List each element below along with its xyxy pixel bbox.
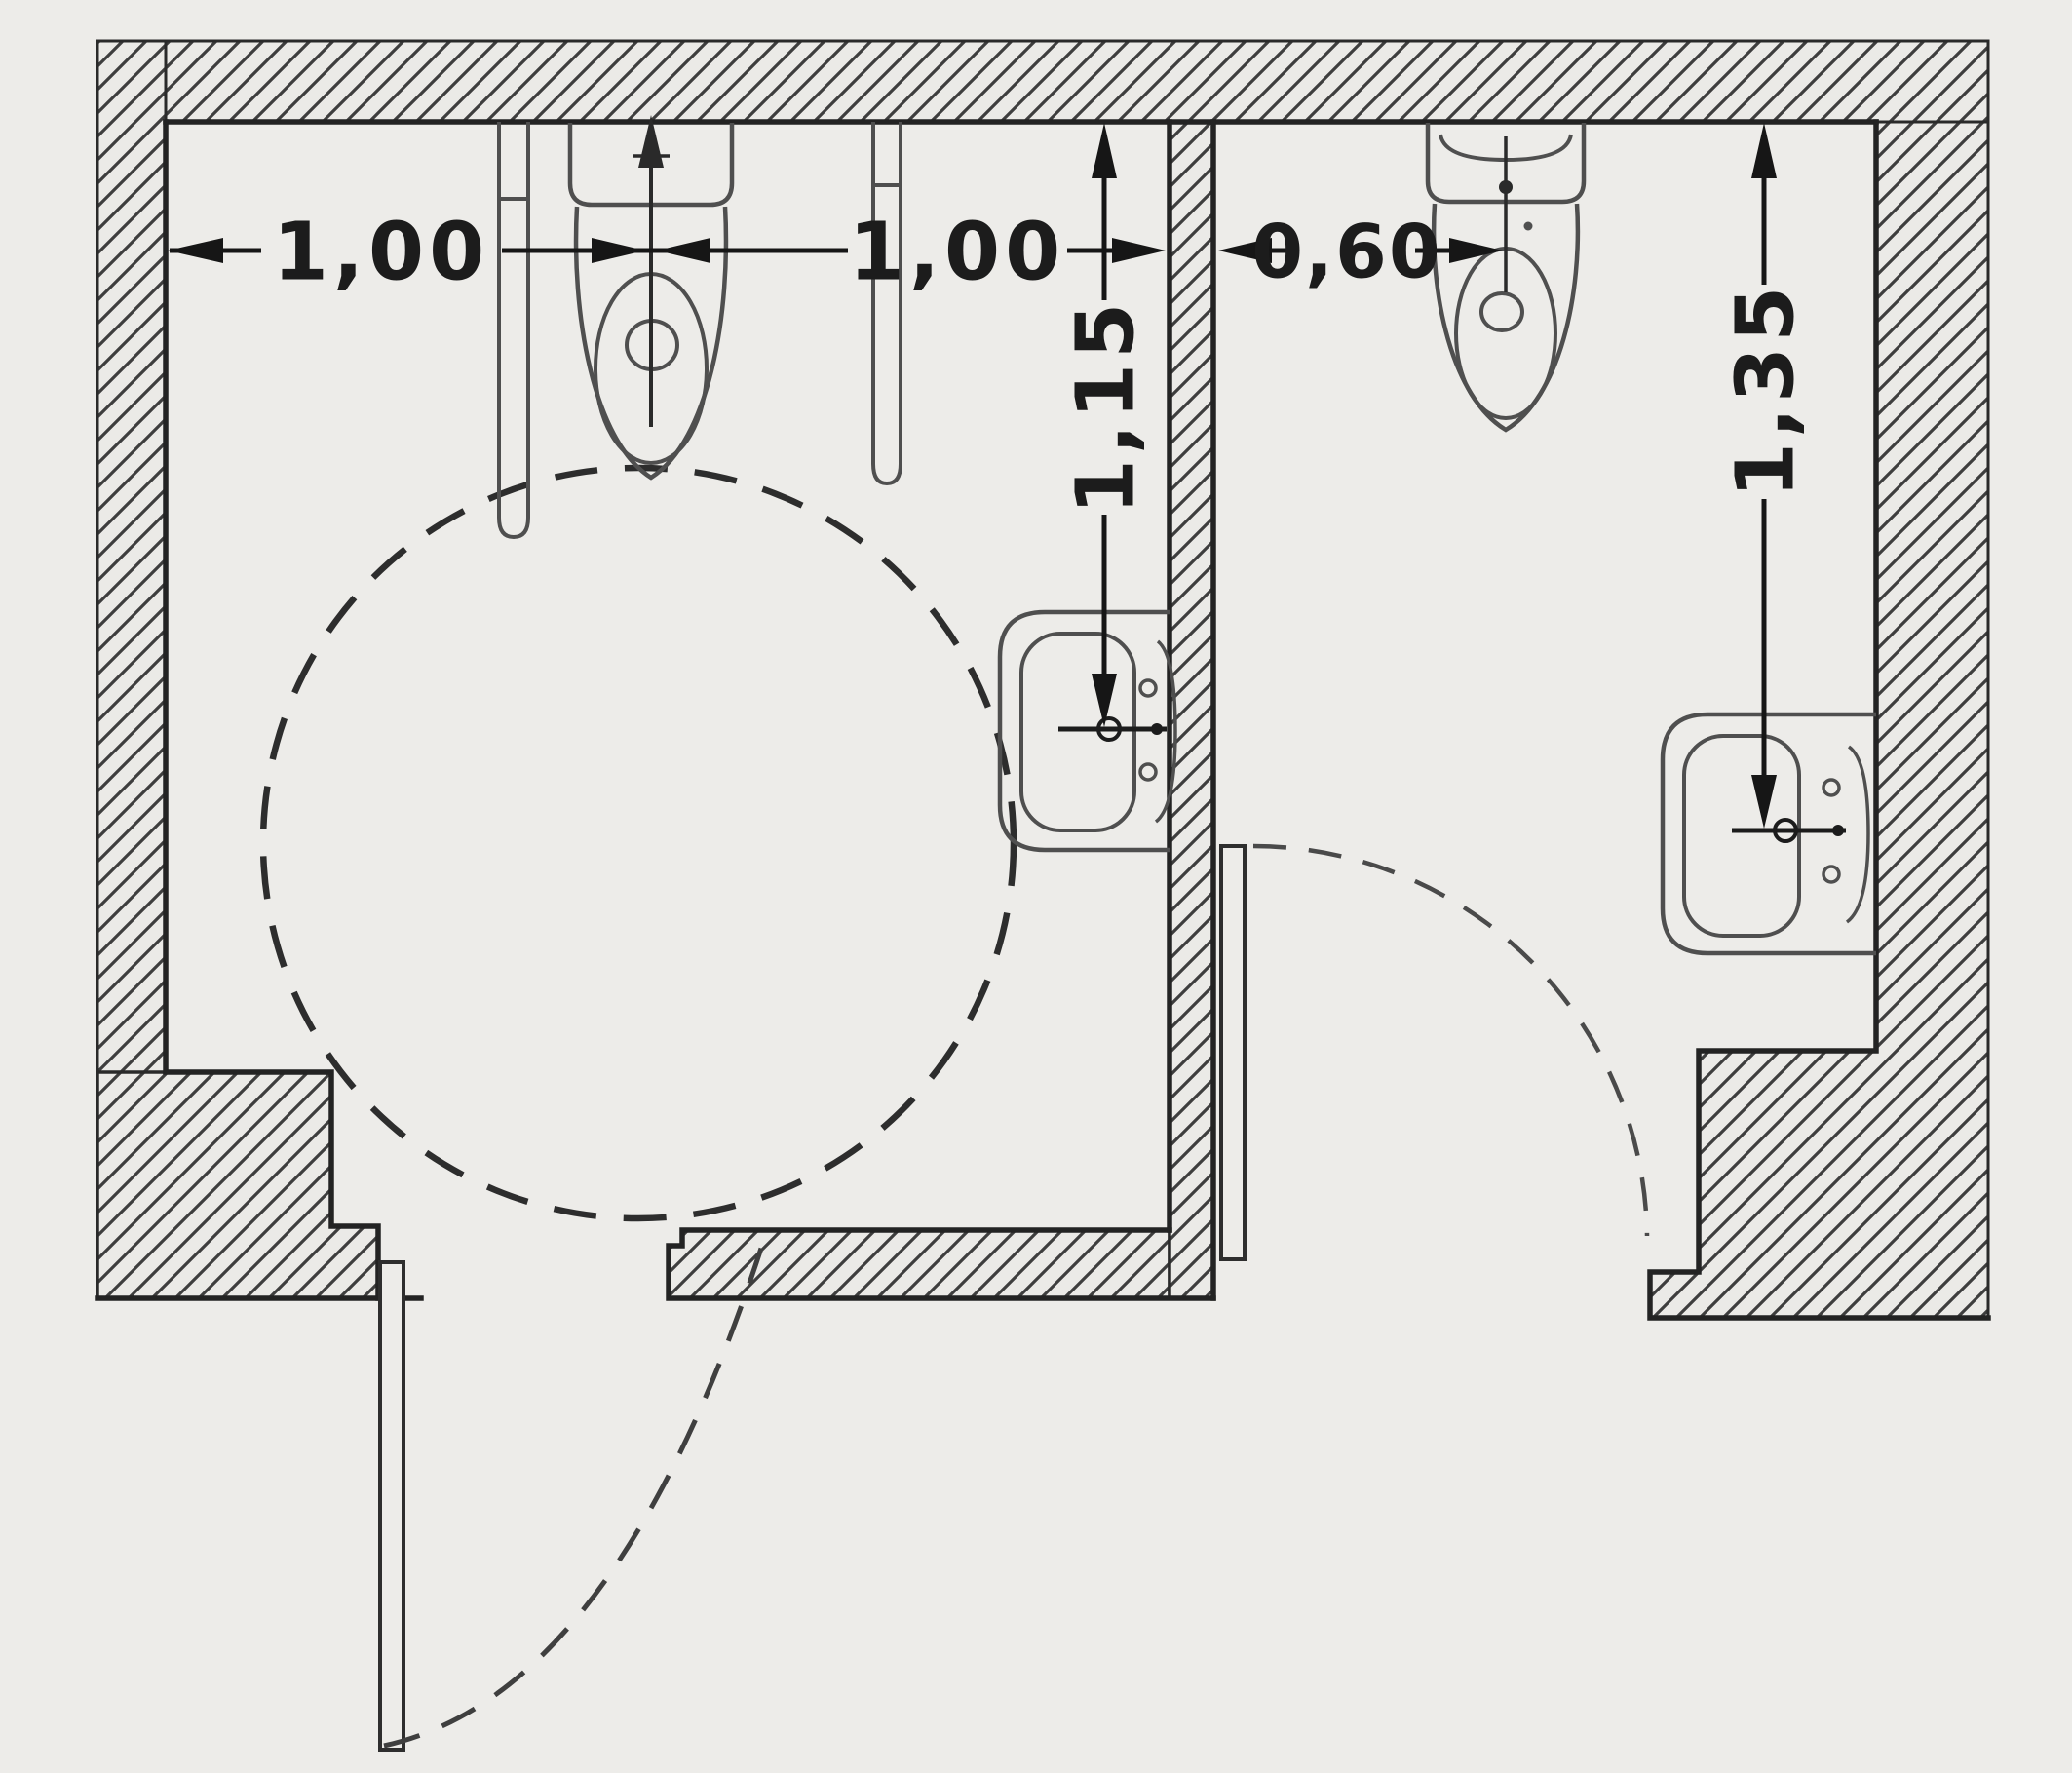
dim-label-right: 1,00 <box>849 207 1065 299</box>
toilet-centerline-dot <box>1499 180 1513 194</box>
standard-door-leaf <box>1221 846 1245 1259</box>
left-wall <box>97 41 166 1072</box>
dim-label-toilet-offset: 0,60 <box>1251 208 1442 294</box>
rear-wall <box>97 41 1988 122</box>
dim-label-left: 1,00 <box>273 207 489 299</box>
accessible-door-leaf <box>380 1262 403 1750</box>
toilet-bolt-dot <box>1524 222 1533 231</box>
washbasin-tap-dot <box>1151 723 1163 735</box>
dim-label-washbasin-depth: 1,35 <box>1720 282 1813 498</box>
scanned-plan-page: 1,00 1,00 1,15 0,60 1,35 <box>0 0 2072 1773</box>
accessible-wc-bottom-wall <box>669 1230 1170 1298</box>
dim-label-washbasin-depth: 1,15 <box>1060 298 1153 515</box>
washbasin-tap-dot <box>1832 825 1844 836</box>
